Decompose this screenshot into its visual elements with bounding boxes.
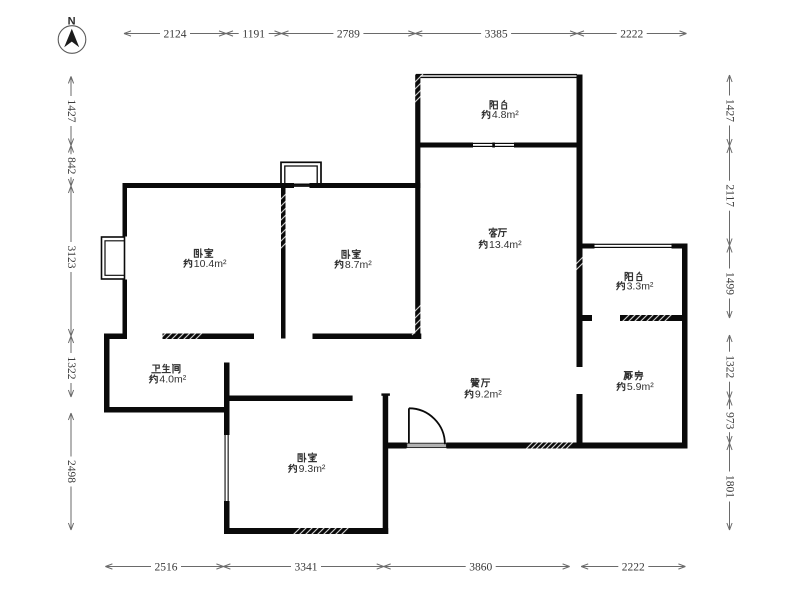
svg-text:2117: 2117 bbox=[724, 184, 736, 207]
svg-text:4.8m²: 4.8m² bbox=[492, 109, 519, 121]
svg-text:1499: 1499 bbox=[724, 272, 736, 295]
svg-text:2516: 2516 bbox=[155, 562, 178, 574]
svg-text:973: 973 bbox=[724, 412, 736, 430]
svg-text:3341: 3341 bbox=[295, 562, 318, 574]
svg-text:3123: 3123 bbox=[65, 246, 77, 269]
svg-text:4.0m²: 4.0m² bbox=[159, 374, 186, 386]
svg-text:2222: 2222 bbox=[622, 562, 645, 574]
svg-text:1322: 1322 bbox=[724, 355, 736, 378]
svg-text:3385: 3385 bbox=[485, 29, 508, 41]
svg-text:1427: 1427 bbox=[65, 100, 77, 123]
svg-text:3860: 3860 bbox=[469, 562, 492, 574]
svg-text:842: 842 bbox=[65, 157, 77, 175]
svg-text:8.7m²: 8.7m² bbox=[345, 259, 372, 271]
svg-text:2789: 2789 bbox=[337, 29, 360, 41]
svg-text:1427: 1427 bbox=[724, 99, 736, 122]
svg-text:9.2m²: 9.2m² bbox=[475, 389, 502, 401]
svg-text:1191: 1191 bbox=[242, 29, 265, 41]
svg-text:10.4m²: 10.4m² bbox=[194, 258, 227, 270]
svg-text:1801: 1801 bbox=[724, 475, 736, 498]
svg-text:5.9m²: 5.9m² bbox=[627, 381, 654, 393]
svg-text:2222: 2222 bbox=[620, 29, 643, 41]
svg-text:3.3m²: 3.3m² bbox=[627, 281, 654, 293]
svg-text:13.4m²: 13.4m² bbox=[489, 239, 522, 251]
svg-text:2498: 2498 bbox=[65, 460, 77, 483]
svg-text:1322: 1322 bbox=[65, 357, 77, 380]
svg-text:9.3m²: 9.3m² bbox=[299, 463, 326, 475]
svg-text:2124: 2124 bbox=[164, 29, 187, 41]
